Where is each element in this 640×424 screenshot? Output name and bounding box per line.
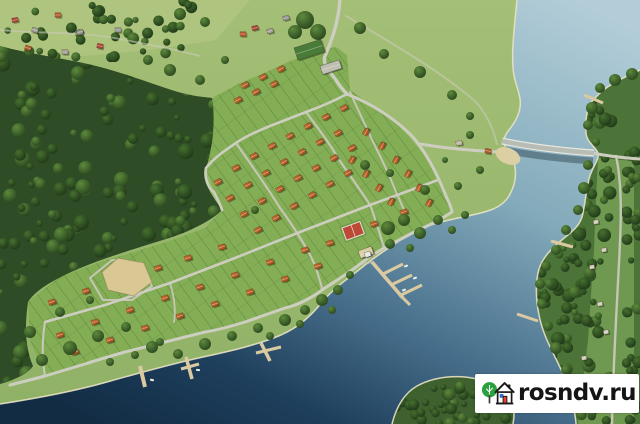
site-plan-canvas: [0, 0, 640, 424]
boat: [196, 369, 200, 371]
tree: [543, 321, 553, 331]
tree: [279, 314, 291, 326]
tree: [454, 182, 462, 190]
tree: [600, 196, 608, 204]
tree: [381, 221, 395, 235]
watermark-text: rosndv.ru: [518, 382, 636, 405]
tree: [573, 205, 583, 215]
tree: [328, 306, 336, 314]
tree: [121, 322, 131, 332]
tree: [604, 166, 612, 174]
tree: [541, 261, 551, 271]
tree: [442, 157, 448, 163]
tree: [360, 160, 370, 170]
tree: [433, 215, 443, 225]
tree: [414, 66, 426, 78]
tree: [24, 326, 36, 338]
tree: [106, 358, 114, 366]
tree: [609, 74, 621, 86]
tree: [55, 307, 65, 317]
tree: [195, 75, 205, 85]
tree: [86, 296, 94, 304]
tree: [583, 120, 593, 130]
tree: [156, 338, 164, 346]
tree: [447, 90, 457, 100]
tree: [346, 271, 354, 279]
tree: [200, 17, 210, 27]
watermark-logo-icon: [481, 378, 515, 409]
tree: [398, 214, 410, 226]
tree: [583, 160, 593, 170]
tree: [36, 354, 48, 366]
tree: [143, 55, 153, 65]
tree: [300, 305, 310, 315]
tree: [379, 49, 389, 59]
tree: [174, 8, 186, 20]
tree: [466, 112, 474, 120]
tree: [310, 24, 326, 40]
tree: [296, 320, 304, 328]
tree: [221, 56, 229, 64]
tree: [551, 245, 561, 255]
tree: [535, 279, 545, 289]
tree: [586, 102, 598, 114]
tree: [414, 227, 426, 239]
tree: [164, 64, 176, 76]
tree: [550, 342, 562, 354]
tree: [253, 323, 263, 333]
tree: [561, 225, 571, 235]
tree: [251, 206, 259, 214]
tree: [13, 345, 27, 359]
tree: [578, 182, 590, 194]
tree: [592, 138, 600, 146]
tree: [227, 331, 237, 341]
masterplan-render: rosndv.ru: [0, 0, 640, 424]
tree: [173, 349, 183, 359]
tree: [333, 285, 343, 295]
tree: [385, 239, 395, 249]
tree: [386, 169, 394, 177]
tree: [448, 226, 456, 234]
tree: [476, 166, 484, 174]
watermark: rosndv.ru: [475, 374, 639, 413]
tree: [63, 341, 77, 355]
tree-icon: [482, 382, 497, 403]
tree: [316, 294, 328, 306]
tree: [461, 211, 469, 219]
tree: [92, 330, 104, 342]
tree: [199, 338, 211, 350]
tree: [406, 244, 414, 252]
tree: [288, 25, 302, 39]
tree: [626, 68, 638, 80]
tree: [131, 351, 139, 359]
tree: [537, 299, 547, 309]
tree: [595, 83, 605, 93]
tree: [466, 131, 474, 139]
tree: [354, 22, 366, 34]
house-icon: [496, 383, 514, 403]
tree: [420, 185, 430, 195]
tree: [266, 332, 274, 340]
